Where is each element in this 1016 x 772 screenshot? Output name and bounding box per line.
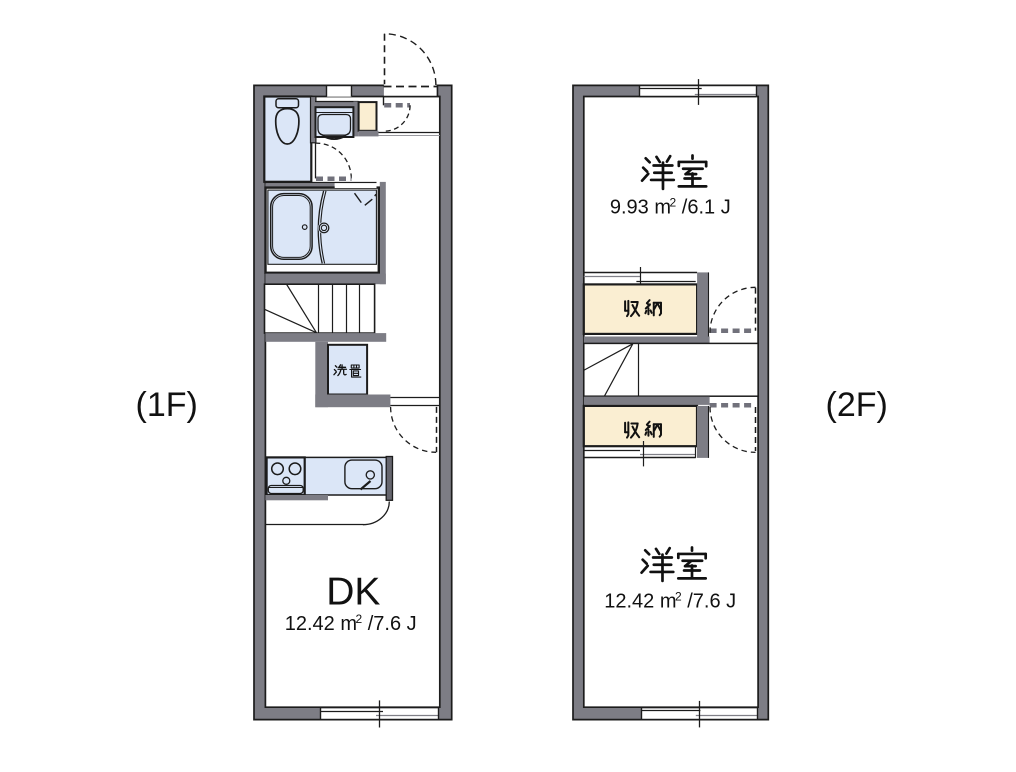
svg-text:(2F): (2F) [826, 386, 888, 424]
svg-text:9.93 m2 /6.1 J: 9.93 m2 /6.1 J [610, 196, 731, 219]
svg-text:12.42 m2 /7.6 J: 12.42 m2 /7.6 J [604, 590, 736, 613]
svg-text:DK: DK [326, 570, 380, 613]
svg-text:12.42 m2 /7.6 J: 12.42 m2 /7.6 J [285, 612, 417, 635]
svg-text:(1F): (1F) [136, 386, 198, 424]
